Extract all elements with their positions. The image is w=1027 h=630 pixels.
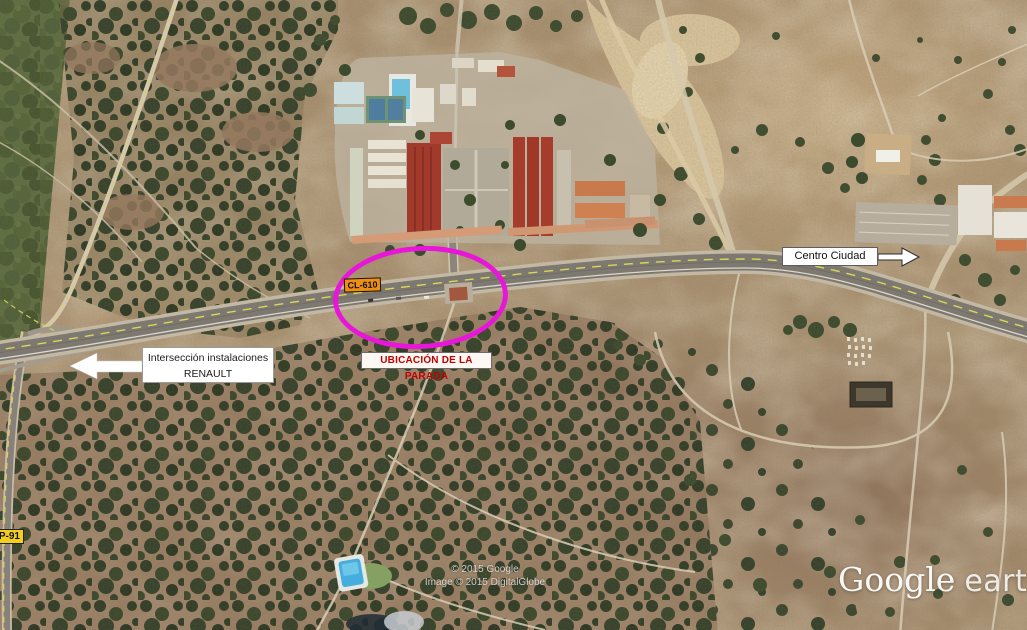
google-earth-product: earth [964, 564, 1027, 599]
attribution-line1: © 2015 Google [405, 564, 565, 577]
renault-callout-line1: Intersección instalaciones [143, 350, 273, 366]
attribution: © 2015 Google Image © 2015 DigitalGlobe [405, 564, 565, 589]
google-earth-brand: Google [838, 560, 955, 599]
stop-location-label: UBICACIÓN DE LA PARADA [361, 352, 492, 369]
renault-callout: Intersección instalaciones RENAULT [142, 347, 274, 383]
renault-callout-line2: RENAULT [143, 366, 273, 382]
centro-ciudad-callout: Centro Ciudad [782, 247, 878, 266]
google-earth-viewport: UBICACIÓN DE LA PARADA Intersección inst… [0, 0, 1027, 630]
google-earth-watermark: Google earth [838, 560, 1027, 599]
road-badge-p91: P-91 [0, 529, 24, 544]
attribution-line2: Image © 2015 DigitalGlobe [405, 577, 565, 590]
satellite-map[interactable] [0, 0, 1027, 630]
road-badge-cl610: CL-610 [344, 277, 381, 292]
